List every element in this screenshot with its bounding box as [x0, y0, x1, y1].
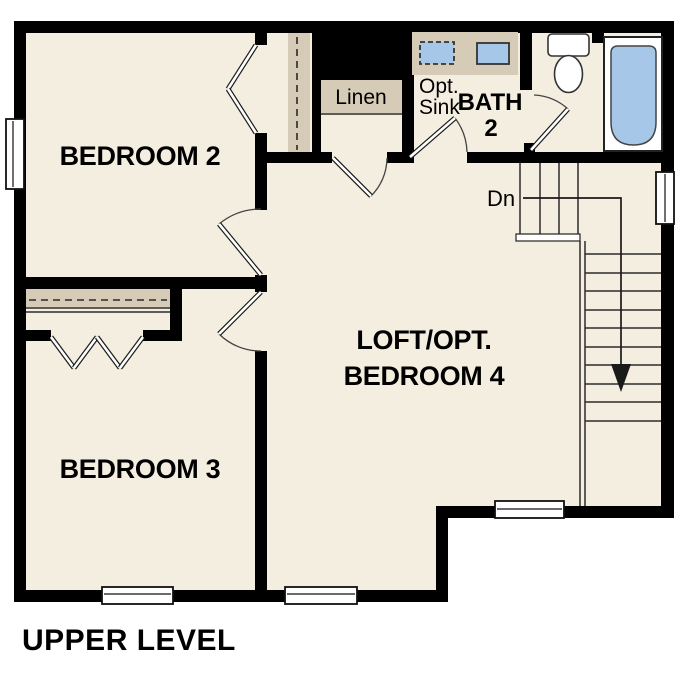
bedroom2-label: BEDROOM 2 [60, 141, 221, 171]
bedroom2-closet-shelf [288, 33, 310, 152]
opt-sink-label-line1: Opt. [419, 75, 459, 98]
plan-title: UPPER LEVEL [22, 624, 236, 657]
bath2-label-line2: 2 [484, 115, 497, 142]
floor-plan-page: BEDROOM 2 BEDROOM 3 LOFT/OPT. BEDROOM 4 … [0, 0, 687, 687]
bath2-label-line1: BATH [458, 89, 523, 116]
wall-segment [592, 21, 604, 43]
window [285, 587, 357, 604]
window [6, 119, 24, 189]
loft-label-line1: LOFT/OPT. [356, 325, 491, 355]
wall-segment [255, 133, 267, 210]
wall-segment [267, 152, 332, 163]
wall-segment [436, 506, 448, 602]
window [102, 587, 173, 604]
wall-segment [255, 33, 267, 45]
wall-segment [312, 21, 414, 80]
stair-landing-nosing [516, 234, 580, 241]
bathtub-basin [611, 46, 656, 145]
wall-segment [26, 330, 51, 341]
window [656, 172, 674, 224]
bathtub [604, 37, 662, 151]
bedroom3-label: BEDROOM 3 [60, 454, 221, 484]
sink [477, 43, 509, 64]
floor-plan: BEDROOM 2 BEDROOM 3 LOFT/OPT. BEDROOM 4 … [0, 0, 687, 687]
bedroom3-closet-shelf [26, 289, 170, 307]
wall-segment [14, 21, 26, 602]
wall-segment [467, 152, 674, 163]
stairs-down-label: Dn [487, 186, 515, 211]
loft-label-line2: BEDROOM 4 [344, 361, 505, 391]
wall-segment [255, 351, 267, 590]
opt-sink-label-line2: Sink [419, 96, 460, 119]
wall-segment [170, 289, 182, 337]
wall-segment [143, 330, 182, 341]
wall-segment [402, 80, 414, 163]
wall-segment [14, 590, 448, 602]
window [495, 501, 564, 518]
linen-label: Linen [335, 86, 386, 109]
wall-segment [387, 152, 410, 163]
wall-segment [14, 277, 267, 289]
optional-sink [420, 42, 454, 64]
wall-segment [520, 32, 532, 90]
wall-segment [312, 80, 321, 163]
